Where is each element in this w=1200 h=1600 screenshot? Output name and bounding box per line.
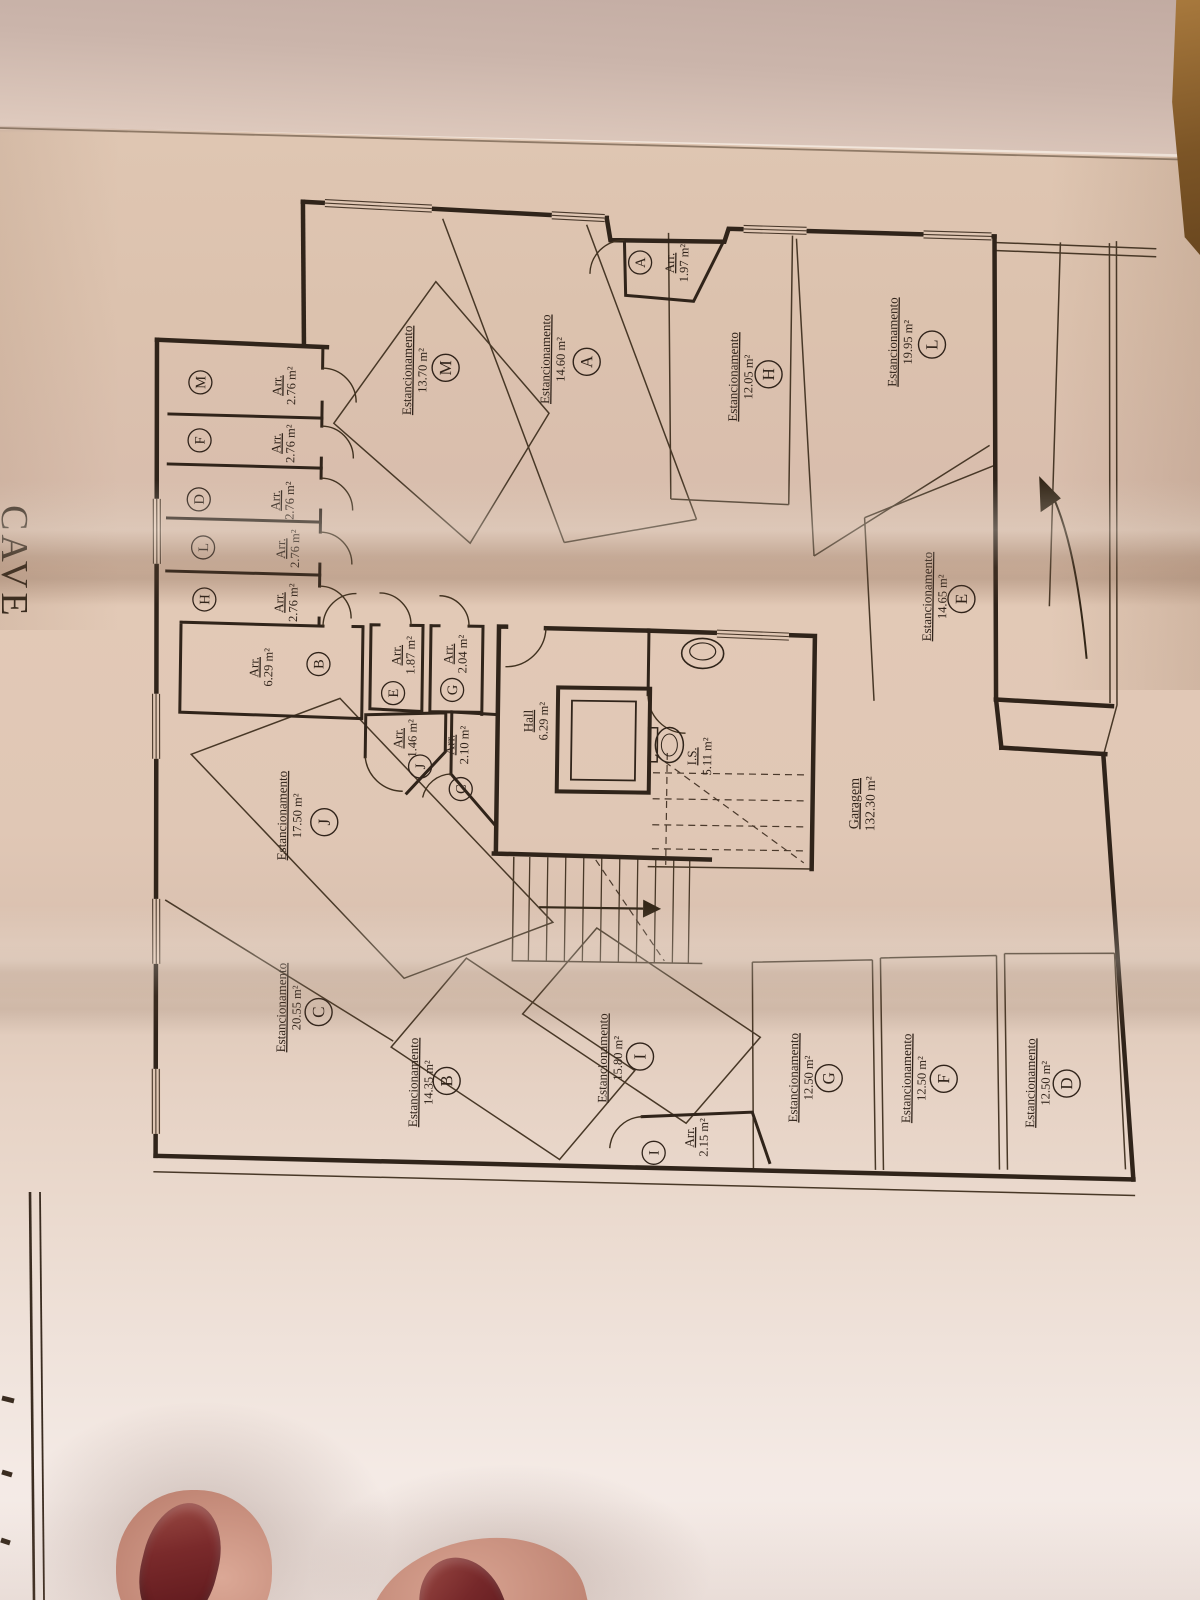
- floor-plan-drawing: CAVE: [0, 0, 1200, 1600]
- storage-label-J: Arr.1.46 m²: [390, 719, 420, 758]
- svg-text:Arr.: Arr.: [388, 645, 403, 666]
- svg-text:12.50 m²: 12.50 m²: [801, 1055, 816, 1100]
- svg-text:G: G: [819, 1072, 838, 1085]
- svg-text:Arr.: Arr.: [440, 643, 455, 664]
- storage-label-M: Arr.2.76 m²: [269, 366, 299, 405]
- svg-text:132.30 m²: 132.30 m²: [862, 776, 878, 831]
- svg-text:H: H: [759, 368, 778, 381]
- washbasin: [681, 638, 723, 669]
- storage-badge-F: F: [188, 429, 211, 452]
- svg-text:M: M: [436, 360, 455, 375]
- svg-text:J: J: [413, 763, 429, 769]
- storage-label-A: Arr.1.97 m²: [662, 243, 692, 282]
- svg-text:12.50 m²: 12.50 m²: [914, 1056, 929, 1101]
- parking-badge-H: H: [755, 361, 782, 388]
- parking-badge-M: M: [432, 354, 459, 381]
- svg-text:D: D: [1057, 1077, 1076, 1090]
- parking-label-A: Estancionamento14.60 m²: [537, 314, 568, 404]
- svg-text:Arr.: Arr.: [268, 433, 283, 454]
- svg-text:Estancionamento: Estancionamento: [1022, 1038, 1038, 1128]
- toilet: [648, 727, 683, 762]
- svg-text:Estancionamento: Estancionamento: [898, 1033, 914, 1123]
- storage-badge-C: C: [449, 777, 472, 800]
- svg-text:I.S.: I.S.: [684, 747, 699, 765]
- svg-text:1.97 m²: 1.97 m²: [677, 244, 692, 283]
- storage-badge-J: J: [408, 755, 431, 778]
- svg-text:19.95 m²: 19.95 m²: [901, 320, 916, 365]
- svg-text:J: J: [315, 818, 334, 825]
- svg-text:2.76 m²: 2.76 m²: [283, 424, 298, 463]
- svg-text:Arr.: Arr.: [442, 735, 457, 756]
- svg-text:Arr.: Arr.: [682, 1127, 697, 1148]
- svg-text:I: I: [647, 1150, 663, 1155]
- svg-text:13.70 m²: 13.70 m²: [415, 348, 430, 393]
- svg-text:1.46 m²: 1.46 m²: [405, 719, 420, 758]
- parking-badge-J: J: [311, 808, 338, 835]
- svg-text:15.80 m²: 15.80 m²: [611, 1036, 626, 1081]
- svg-text:B: B: [311, 659, 327, 669]
- garage-label: Garagem132.30 m²: [847, 776, 878, 831]
- svg-text:Estancionamento: Estancionamento: [405, 1038, 421, 1128]
- svg-text:12.50 m²: 12.50 m²: [1038, 1061, 1053, 1106]
- storage-badge-B: B: [307, 652, 330, 675]
- svg-text:A: A: [633, 257, 649, 268]
- svg-text:14.60 m²: 14.60 m²: [553, 337, 568, 382]
- svg-text:12.05 m²: 12.05 m²: [741, 354, 756, 399]
- parking-label-F: Estancionamento12.50 m²: [898, 1033, 929, 1123]
- svg-text:2.04 m²: 2.04 m²: [455, 635, 470, 674]
- storage-label-F: Arr.2.76 m²: [268, 424, 298, 463]
- parking-label-J: Estancionamento17.50 m²: [274, 771, 305, 861]
- storage-badge-A: A: [628, 251, 651, 274]
- svg-text:C: C: [454, 784, 470, 794]
- wc-label: I.S.5.11 m²: [684, 737, 715, 776]
- parking-label-L: Estancionamento19.95 m²: [884, 297, 915, 387]
- svg-text:Estancionamento: Estancionamento: [725, 332, 741, 422]
- svg-text:F: F: [193, 436, 209, 444]
- photo-of-floor-plan: CAVE: [0, 0, 1200, 1600]
- svg-text:M: M: [193, 376, 209, 389]
- svg-text:I: I: [630, 1053, 649, 1059]
- parking-bay-lines: [153, 215, 1156, 1196]
- parking-badge-G: G: [815, 1065, 842, 1092]
- svg-text:G: G: [445, 684, 461, 695]
- storage-badge-G: G: [440, 678, 463, 701]
- svg-text:Arr.: Arr.: [662, 253, 677, 274]
- svg-text:B: B: [437, 1075, 456, 1087]
- svg-text:Arr.: Arr.: [390, 728, 405, 749]
- hall-label: Hall6.29 m²: [520, 701, 551, 740]
- svg-text:2.15 m²: 2.15 m²: [697, 1118, 712, 1157]
- svg-text:Estancionamento: Estancionamento: [399, 325, 415, 415]
- svg-text:F: F: [934, 1074, 953, 1084]
- paper-fold-crease-upper: [0, 480, 1200, 605]
- svg-text:2.76 m²: 2.76 m²: [284, 366, 299, 405]
- storage-badge-I: I: [642, 1141, 665, 1164]
- svg-text:6.29 m²: 6.29 m²: [536, 702, 551, 741]
- parking-label-B: Estancionamento14.35 m²: [405, 1038, 436, 1128]
- svg-text:Estancionamento: Estancionamento: [537, 314, 553, 404]
- storage-label-E: Arr.1.87 m²: [388, 636, 418, 675]
- svg-text:Estancionamento: Estancionamento: [884, 297, 900, 387]
- parking-label-H: Estancionamento12.05 m²: [725, 332, 756, 422]
- parking-badge-L: L: [918, 331, 945, 358]
- svg-text:Arr.: Arr.: [246, 657, 261, 678]
- svg-text:Estancionamento: Estancionamento: [785, 1033, 801, 1123]
- parking-badge-D: D: [1053, 1070, 1080, 1097]
- svg-text:6.29 m²: 6.29 m²: [261, 648, 276, 687]
- svg-text:E: E: [386, 688, 402, 697]
- svg-text:17.50 m²: 17.50 m²: [290, 793, 305, 838]
- parking-badge-B: B: [433, 1067, 460, 1094]
- svg-text:Garagem: Garagem: [847, 778, 863, 830]
- svg-text:Arr.: Arr.: [269, 375, 284, 396]
- storage-label-B: Arr.6.29 m²: [246, 648, 276, 687]
- paper-fold-crease-lower: [0, 905, 1200, 1035]
- parking-label-M: Estancionamento13.70 m²: [399, 325, 430, 415]
- svg-text:L: L: [922, 339, 941, 350]
- svg-text:Estancionamento: Estancionamento: [274, 771, 290, 861]
- parking-label-D: Estancionamento12.50 m²: [1022, 1038, 1053, 1128]
- parking-label-G: Estancionamento12.50 m²: [785, 1033, 816, 1123]
- parking-badge-A: A: [573, 348, 600, 375]
- storage-badge-E: E: [381, 681, 404, 704]
- svg-text:5.11 m²: 5.11 m²: [700, 737, 715, 775]
- svg-text:A: A: [577, 355, 596, 368]
- storage-label-G: Arr.2.04 m²: [440, 634, 470, 673]
- elevator: [557, 687, 650, 792]
- parking-badge-I: I: [626, 1043, 653, 1070]
- storage-badge-M: M: [189, 371, 212, 394]
- svg-text:2.10 m²: 2.10 m²: [457, 726, 472, 765]
- svg-text:Hall: Hall: [521, 709, 536, 732]
- svg-text:1.87 m²: 1.87 m²: [403, 636, 418, 675]
- parking-badge-F: F: [930, 1065, 957, 1092]
